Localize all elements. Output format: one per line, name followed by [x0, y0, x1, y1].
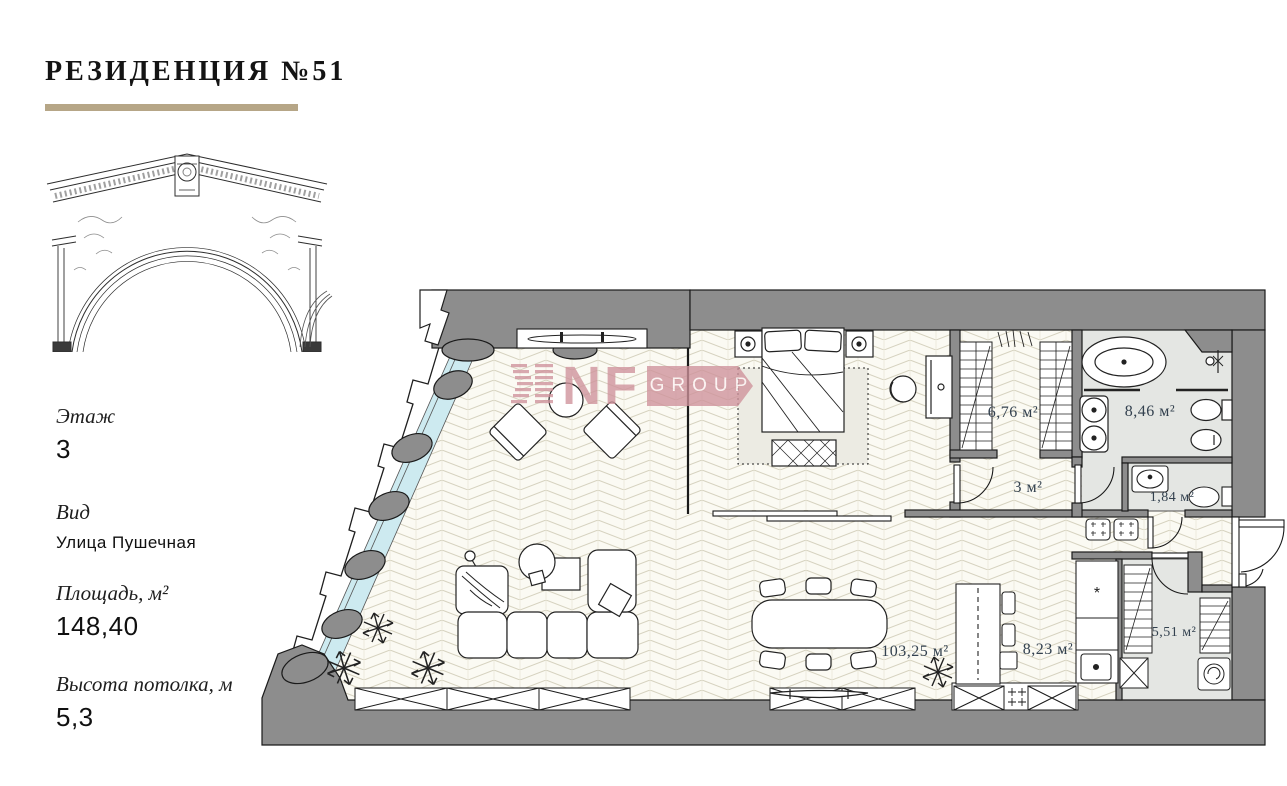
area-label-kitchen: 8,23 м² [1023, 641, 1073, 659]
bidet [1191, 430, 1221, 451]
area-label-wardrobe: 6,76 м² [988, 404, 1038, 422]
dining-table [752, 600, 887, 648]
bar-stool [1002, 624, 1015, 646]
toilet-tank [1222, 400, 1232, 420]
area-label-wc: 1,84 м² [1150, 490, 1195, 506]
floor-lamp [465, 551, 475, 561]
area-label-hall: 3 м² [1014, 479, 1043, 497]
toilet-tank [1222, 487, 1232, 506]
chaise [456, 566, 508, 614]
cooktop [1114, 519, 1138, 540]
toilet [1191, 400, 1221, 421]
side-table [549, 383, 583, 417]
area-label-living: 103,25 м² [881, 643, 948, 661]
bar-stool [1002, 592, 1015, 614]
svg-text:*: * [1094, 585, 1100, 602]
cooktop [1086, 519, 1110, 540]
floor-plan: * [0, 0, 1287, 786]
exterior-curve-detail [300, 291, 332, 347]
area-label-laundry: 5,51 м² [1152, 625, 1197, 641]
area-label-bathroom: 8,46 м² [1125, 403, 1175, 421]
bar-stool [1000, 652, 1017, 669]
residence-plan-page: РЕЗИДЕНЦИЯ №51 [0, 0, 1287, 786]
console-niche [517, 329, 647, 348]
